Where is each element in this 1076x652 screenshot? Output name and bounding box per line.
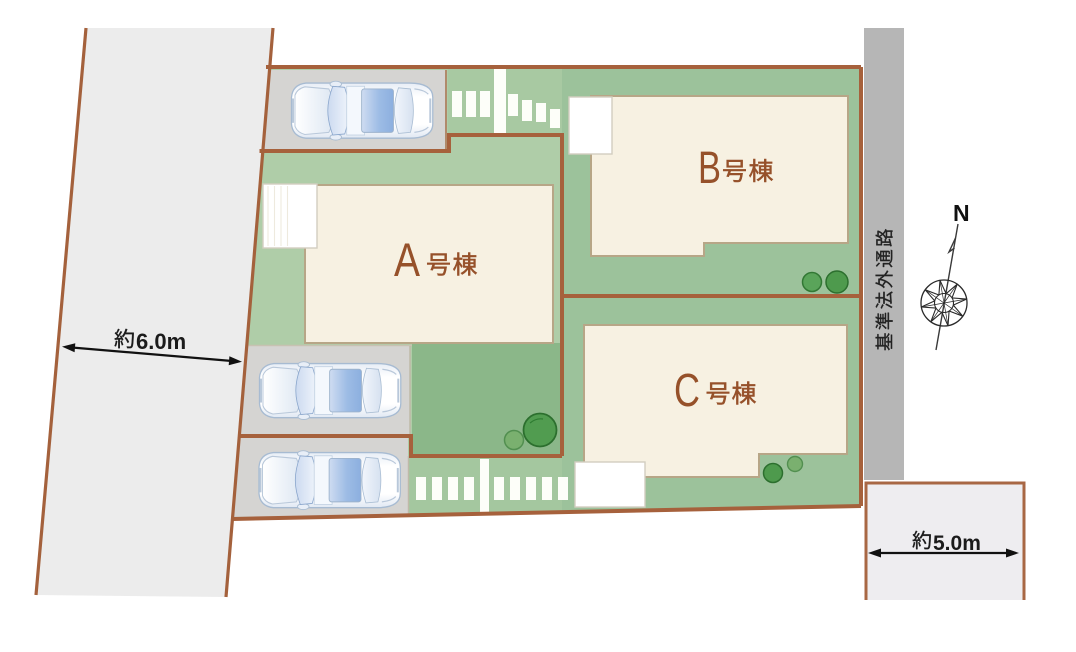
svg-text:N: N: [953, 200, 970, 226]
svg-text:A: A: [394, 233, 421, 286]
svg-text:5.0m: 5.0m: [933, 532, 981, 555]
svg-text:6.0m: 6.0m: [136, 329, 186, 354]
svg-text:C: C: [674, 364, 700, 416]
svg-text:B: B: [698, 142, 721, 193]
